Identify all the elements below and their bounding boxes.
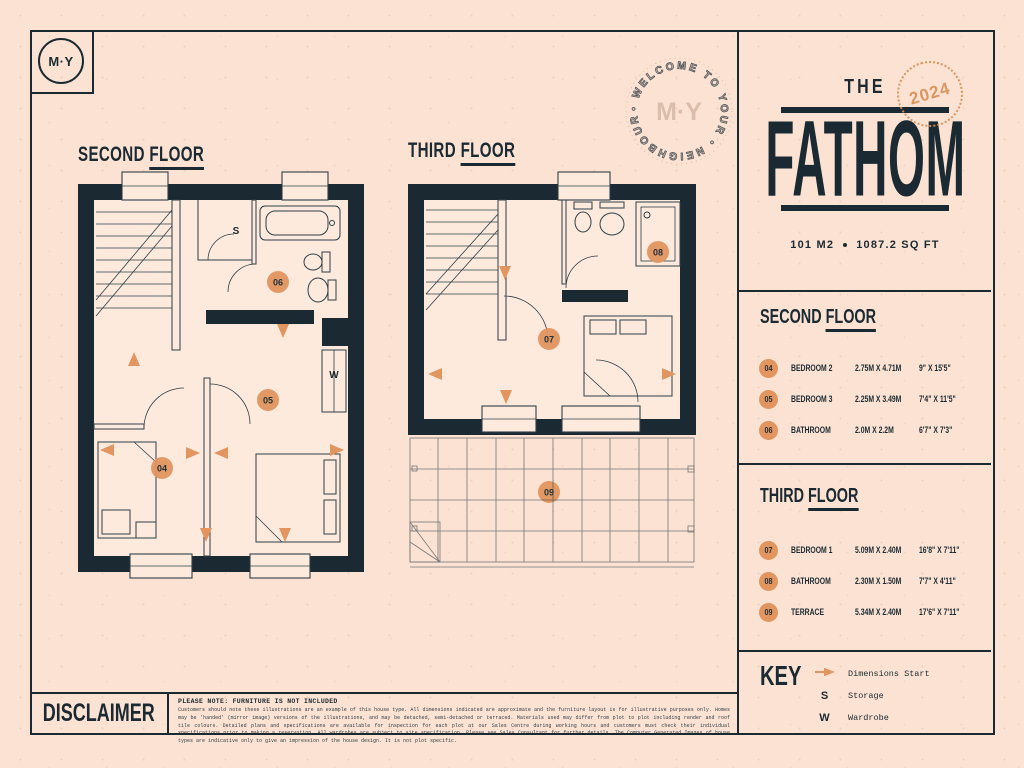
disclaimer-vertical-divider: [167, 692, 169, 733]
brand-logo-text: M·Y: [48, 54, 73, 69]
key-items: Dimensions Start S Storage W Wardrobe: [811, 665, 930, 731]
room-row-06: 06 BATHROOM 2.0M X 2.2M 6'7" X 7'3": [759, 420, 991, 440]
svg-text:05: 05: [263, 396, 273, 406]
wardrobe-label: W: [329, 370, 339, 381]
disclaimer-heading: DISCLAIMER: [42, 699, 154, 728]
wardrobe-symbol: W: [811, 712, 838, 724]
double-bed-icon: [256, 454, 340, 542]
bullet-separator: [843, 243, 847, 247]
third-title-word1: THIRD: [408, 139, 456, 162]
partition-wall: [94, 424, 144, 429]
third-floor-section: THIRD FLOOR 07 BEDROOM 1 5.09M X 2.40M 1…: [739, 465, 991, 648]
room-name: BEDROOM 3: [791, 394, 855, 405]
room-number-badge: 04: [759, 359, 778, 378]
year-stamp-text: 2024: [907, 79, 953, 110]
third-top-window: [558, 172, 610, 200]
room-badge-08: 08: [647, 241, 669, 263]
svg-text:04: 04: [157, 464, 167, 474]
third-floor-rows: 07 BEDROOM 1 5.09M X 2.40M 16'8" X 7'11"…: [739, 540, 991, 622]
room-dims-imperial: 6'7" X 7'3": [919, 425, 991, 436]
second-floor-plan: S W: [76, 170, 368, 582]
double-bed-icon: [584, 316, 672, 396]
sink-icon: [328, 280, 336, 300]
second-floor-plan-title: SECOND FLOOR: [78, 143, 253, 167]
room-dims-metric: 2.75M X 4.71M: [855, 363, 919, 374]
single-bed-icon: [98, 442, 156, 538]
logo-box: M·Y: [30, 30, 94, 94]
storage-symbol: S: [811, 690, 838, 702]
svg-text:06: 06: [273, 278, 283, 288]
room-name: BATHROOM: [791, 576, 855, 587]
storage-label: S: [233, 226, 240, 237]
key-label: Dimensions Start: [848, 669, 930, 679]
second-title-word1: SECOND: [78, 143, 145, 166]
room-number-badge: 09: [759, 603, 778, 622]
room-badge-04: 04: [151, 457, 173, 479]
disclaimer-body: Customers should note these illustration…: [178, 707, 730, 746]
welcome-stamp-center: M·Y: [656, 98, 702, 126]
svg-text:07: 07: [544, 335, 554, 345]
sink-icon: [600, 202, 624, 208]
welcome-stamp: • WELCOME TO YOUR • NEIGHBOURHOOD M·Y: [624, 56, 734, 166]
svg-text:08: 08: [653, 248, 663, 258]
room-dims-imperial: 9" X 15'5": [919, 363, 991, 374]
key-item-wardrobe: W Wardrobe: [811, 709, 930, 726]
third-floor-heading: THIRD FLOOR: [760, 485, 991, 508]
floorplan-sheet: M·Y • WELCOME TO YOUR • NEIGHBOURHOOD M·…: [0, 0, 1024, 768]
third-floor-plan-title: THIRD FLOOR: [408, 139, 557, 163]
room-number-badge: 06: [759, 421, 778, 440]
room-dims-imperial: 16'8" X 7'11": [919, 545, 991, 556]
area-metric: 101 M2: [790, 239, 834, 251]
room-dims-metric: 2.30M X 1.50M: [855, 576, 919, 587]
room-number-badge: 08: [759, 572, 778, 591]
second-floor-heading: SECOND FLOOR: [760, 306, 991, 329]
key-label: Storage: [848, 691, 884, 701]
room-name: BEDROOM 2: [791, 363, 855, 374]
room-name: BATHROOM: [791, 425, 855, 436]
room-dims-imperial: 17'6" X 7'11": [919, 607, 991, 618]
room-row-05: 05 BEDROOM 3 2.25M X 3.49M 7'4" X 11'5": [759, 389, 991, 409]
room-dims-imperial: 7'4" X 11'5": [919, 394, 991, 405]
room-row-07: 07 BEDROOM 1 5.09M X 2.40M 16'8" X 7'11": [759, 540, 991, 560]
room-dims-imperial: 7'7" X 4'11": [919, 576, 991, 587]
terrace-steps: [410, 522, 440, 562]
key-item-dimensions-start: Dimensions Start: [811, 665, 930, 682]
room-badge-07: 07: [538, 328, 560, 350]
wardrobe-icon: [322, 350, 346, 412]
key-label: Wardrobe: [848, 713, 889, 723]
toilet-icon: [574, 202, 592, 209]
disclaimer-note-title: PLEASE NOTE: FURNITURE IS NOT INCLUDED: [178, 698, 730, 705]
disclaimer-body-box: PLEASE NOTE: FURNITURE IS NOT INCLUDED C…: [178, 698, 730, 731]
interior-wall: [562, 290, 628, 302]
room-badge-05: 05: [257, 389, 279, 411]
room-badge-06: 06: [267, 271, 289, 293]
dimension-arrow-icon: [811, 667, 838, 680]
title-name-wrap: FATHOM: [739, 113, 991, 205]
room-row-08: 08 BATHROOM 2.30M X 1.50M 7'7" X 4'11": [759, 571, 991, 591]
second-floor-section: SECOND FLOOR 04 BEDROOM 2 2.75M X 4.71M …: [739, 292, 991, 461]
room-dims-metric: 2.0M X 2.2M: [855, 425, 919, 436]
room-row-09: 09 TERRACE 5.34M X 2.40M 17'6" X 7'11": [759, 602, 991, 622]
interior-wall: [206, 310, 314, 324]
second-title-word2: FLOOR: [149, 143, 204, 170]
interior-wall: [322, 318, 348, 346]
room-dims-metric: 2.25M X 3.49M: [855, 394, 919, 405]
room-dims-metric: 5.09M X 2.40M: [855, 545, 919, 556]
area-imperial: 1087.2 SQ FT: [856, 239, 940, 251]
room-row-04: 04 BEDROOM 2 2.75M X 4.71M 9" X 15'5": [759, 358, 991, 378]
room-number-badge: 07: [759, 541, 778, 560]
key-section: KEY Dimensions Start S Storage W Wardrob…: [739, 652, 991, 731]
key-item-storage: S Storage: [811, 687, 930, 704]
toilet-icon: [322, 252, 330, 272]
disclaimer-heading-box: DISCLAIMER: [30, 694, 167, 733]
room-number-badge: 05: [759, 390, 778, 409]
room-name: TERRACE: [791, 607, 855, 618]
room-name: BEDROOM 1: [791, 545, 855, 556]
room-dims-metric: 5.34M X 2.40M: [855, 607, 919, 618]
third-floor-plan: 07 08 09: [406, 170, 702, 582]
brand-logo: M·Y: [38, 38, 84, 84]
third-title-word2: FLOOR: [461, 139, 516, 166]
second-floor-rows: 04 BEDROOM 2 2.75M X 4.71M 9" X 15'5" 05…: [739, 358, 991, 440]
key-heading: KEY: [760, 660, 818, 692]
svg-text:09: 09: [544, 488, 554, 498]
area-line: 101 M2 1087.2 SQ FT: [739, 239, 991, 251]
